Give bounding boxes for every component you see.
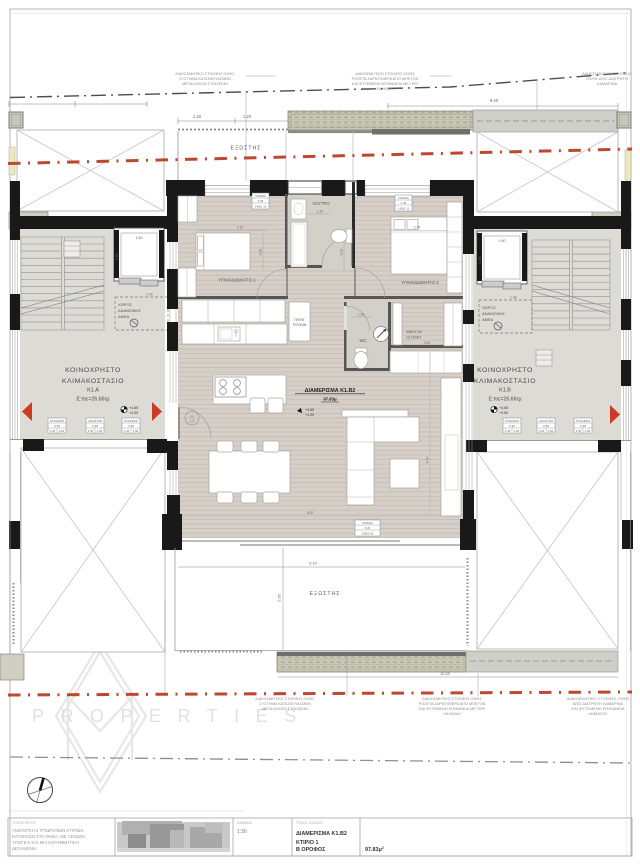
svg-text:ΔΩΜΑΤΟΣ: ΔΩΜΑΤΟΣ: [588, 711, 608, 716]
svg-text:1.40: 1.40: [510, 296, 517, 300]
svg-text:ΚΑΙ ΦΥΤΕΜΕΝΗ ΕΠΙΦΑΝΕΙΑ ΜΕ ΓΚΡΙ: ΚΑΙ ΦΥΤΕΜΕΝΗ ΕΠΙΦΑΝΕΙΑ ΜΕ ΓΚΡΙ: [352, 82, 418, 86]
svg-text:ΑΝΟΙΓΟΜ: ΑΝΟΙΓΟΜ: [88, 419, 102, 423]
svg-text:ΔΙΑΚΟΣΜΗΤΙΚΟ ΣΤΟΙΧΕΙΟ ΟΨΗΣ: ΔΙΑΚΟΣΜΗΤΙΚΟ ΣΤΟΙΧΕΙΟ ΟΨΗΣ: [355, 72, 415, 76]
svg-text:8.20: 8.20: [307, 511, 314, 515]
svg-text:2.60: 2.60: [59, 429, 65, 433]
svg-text:2.60: 2.60: [585, 429, 591, 433]
svg-text:0.80|2.60: 0.80|2.60: [362, 532, 374, 536]
svg-text:ΣΙΝΑΜΑ: ΣΙΝΑΜΑ: [255, 194, 266, 198]
svg-text:ΣΤΑΘΕΡΟ: ΣΤΑΘΕΡΟ: [505, 419, 520, 423]
svg-text:0.45: 0.45: [576, 429, 582, 433]
svg-text:1.60: 1.60: [499, 239, 506, 243]
svg-text:1.20: 1.20: [193, 114, 202, 119]
svg-text:0.90: 0.90: [543, 424, 549, 428]
svg-text:ΚΟΙΝΟΧΡΗΣΤΟ: ΚΟΙΝΟΧΡΗΣΤΟ: [65, 367, 121, 374]
svg-text:2.70: 2.70: [414, 226, 421, 230]
svg-text:WC: WC: [360, 338, 367, 343]
svg-text:ΣΤΑΘΕΡΟ: ΣΤΑΘΕΡΟ: [576, 419, 591, 423]
svg-text:ΣΙΝΑΜΑ: ΣΙΝΑΜΑ: [398, 196, 409, 200]
svg-text:ΣΙΝΑΜΑ: ΣΙΝΑΜΑ: [362, 521, 373, 525]
svg-text:ΣΥΣΤΗΜΑ ΚΑΤΑΣΚΕΥΑΣΜΩΝ: ΣΥΣΤΗΜΑ ΚΑΤΑΣΚΕΥΑΣΜΩΝ: [179, 77, 231, 81]
svg-text:0.45: 0.45: [505, 429, 511, 433]
svg-text:0.90: 0.90: [54, 424, 60, 428]
svg-text:ΔΙΑΜΕΡΙΣΜΑ Κ1.Β2: ΔΙΑΜΕΡΙΣΜΑ Κ1.Β2: [305, 388, 356, 394]
svg-text:10.20: 10.20: [440, 671, 451, 676]
svg-text:ΛΑΜΑΡΙΝΑ: ΛΑΜΑΡΙΝΑ: [597, 81, 618, 86]
svg-text:9.10: 9.10: [309, 561, 318, 566]
svg-text:2.45: 2.45: [258, 199, 264, 203]
svg-text:ΤΙΤΛΟΣ ΕΡΓΟΥ: ΤΙΤΛΟΣ ΕΡΓΟΥ: [12, 821, 37, 825]
svg-text:3.23: 3.23: [340, 249, 344, 256]
svg-text:2.60: 2.60: [548, 429, 554, 433]
svg-text:ΡΟΖΕΤΑ ΖΑΡΝΤΙΝΙΕΡΑ ΑΠΟ ΜΠΕΤΟΝ: ΡΟΖΕΤΑ ΖΑΡΝΤΙΝΙΕΡΑ ΑΠΟ ΜΠΕΤΟΝ: [352, 77, 419, 81]
svg-text:0.80|1.10: 0.80|1.10: [255, 205, 267, 209]
svg-text:2.05: 2.05: [424, 341, 430, 345]
svg-text:ΧΑΛΙΚΑΚΙ: ΧΑΛΙΚΑΚΙ: [376, 87, 393, 91]
svg-text:1.60: 1.60: [136, 236, 143, 240]
svg-text:ΡΟΖΕΤΑ ΖΑΡΝΤΙΝΙΕΡΑ ΑΠΟ ΜΠΕΤΟΝ: ΡΟΖΕΤΑ ΖΑΡΝΤΙΝΙΕΡΑ ΑΠΟ ΜΠΕΤΟΝ: [419, 702, 486, 706]
svg-text:ΔΙΑΜΕΡΙΣΜΑ Κ1.Β2: ΔΙΑΜΕΡΙΣΜΑ Κ1.Β2: [296, 831, 347, 837]
svg-text:ΚΛΙΜΑΚΟΣΤΑΣΙΟ: ΚΛΙΜΑΚΟΣΤΑΣΙΟ: [62, 378, 124, 385]
svg-text:ΔΙΑΚΟΣΜΗΤΙΚΟ ΣΤΟΙΧΕΙΟ ΟΨΗΣ: ΔΙΑΚΟΣΜΗΤΙΚΟ ΣΤΟΙΧΕΙΟ ΟΨΗΣ: [255, 697, 315, 701]
svg-text:ΑΜΕΑ: ΑΜΕΑ: [482, 317, 494, 322]
svg-text:ΧΩΡΟΣ: ΧΩΡΟΣ: [482, 305, 496, 310]
svg-text:ΚΛΙΜΑΚΟΣΤΑΣΙΟ: ΚΛΙΜΑΚΟΣΤΑΣΙΟ: [474, 378, 536, 385]
svg-text:+4.50: +4.50: [305, 413, 314, 417]
svg-text:0.90: 0.90: [509, 424, 515, 428]
svg-text:ΜΕΤΑΛΛΙΚΩΝ ΣΤΟΙΧΕΙΩΝ: ΜΕΤΑΛΛΙΚΩΝ ΣΤΟΙΧΕΙΩΝ: [182, 82, 228, 86]
svg-text:ΕΞΩΣΤΗΣ: ΕΞΩΣΤΗΣ: [309, 591, 340, 597]
svg-text:ΧΑΛΙΚΑΚΙ: ΧΑΛΙΚΑΚΙ: [443, 712, 460, 716]
svg-text:ΧΩΡΟΣ: ΧΩΡΟΣ: [118, 302, 132, 307]
svg-text:ΚΤΙΡΙΟ 1: ΚΤΙΡΙΟ 1: [296, 840, 318, 846]
svg-text:3.25: 3.25: [259, 249, 263, 256]
svg-text:2.60: 2.60: [97, 429, 103, 433]
svg-text:ΣΤΑΘΕΡΟ: ΣΤΑΘΕΡΟ: [124, 419, 139, 423]
svg-text:ΚΑΙ ΦΥΤΕΜΕΝΗ ΕΠΙΦΑΝΕΙΑ ΜΕ ΓΚΡΙ: ΚΑΙ ΦΥΤΕΜΕΝΗ ΕΠΙΦΑΝΕΙΑ ΜΕ ΓΚΡΙ: [419, 707, 485, 711]
svg-text:ΥΠΝΟΔΩΜΑΤΙΟ 2: ΥΠΝΟΔΩΜΑΤΙΟ 2: [401, 280, 439, 285]
svg-text:ΕΞΩΣΤΗΣ: ΕΞΩΣΤΗΣ: [230, 146, 261, 152]
svg-text:ΠΛΥΝΤ: ΠΛΥΝΤ: [294, 318, 305, 322]
svg-text:ΑΝΕΓΕΡΣΗ 2 ΤΡΙΩΡΟΦΩΝ ΚΤΙΡΙΩΝ: ΑΝΕΓΕΡΣΗ 2 ΤΡΙΩΡΟΦΩΝ ΚΤΙΡΙΩΝ: [12, 828, 84, 833]
svg-text:ΥΠΟΓΕΙΑ ΚΑΙ ΜΙΑ ΚΟΛΥΜΒΗΤΙΚΗ: ΥΠΟΓΕΙΑ ΚΑΙ ΜΙΑ ΚΟΛΥΜΒΗΤΙΚΗ: [12, 840, 79, 845]
svg-text:9.40: 9.40: [490, 98, 499, 103]
svg-text:ΑΝΟΙΓΟΜ: ΑΝΟΙΓΟΜ: [539, 419, 553, 423]
svg-text:ΚΛΙΜΑΚΑ: ΚΛΙΜΑΚΑ: [237, 821, 253, 825]
svg-text:2.95: 2.95: [277, 593, 282, 602]
svg-text:0.45: 0.45: [88, 429, 94, 433]
svg-text:+4.65: +4.65: [129, 406, 138, 410]
svg-text:1.26: 1.26: [358, 313, 364, 317]
svg-text:1.15: 1.15: [317, 210, 323, 214]
svg-text:97.83μ2: 97.83μ2: [365, 846, 384, 853]
svg-text:2.60: 2.60: [514, 429, 520, 433]
svg-text:ΡΟΥΧΩΝ: ΡΟΥΧΩΝ: [293, 323, 307, 327]
svg-text:ΣΤΑΘΕΡΟ: ΣΤΑΘΕΡΟ: [50, 419, 65, 423]
svg-text:1.90: 1.90: [115, 254, 119, 261]
svg-text:+4.65: +4.65: [499, 406, 508, 410]
svg-text:ΑΜΕΑ: ΑΜΕΑ: [118, 314, 130, 319]
svg-text:8.20: 8.20: [365, 526, 371, 530]
svg-text:ΥΠΝΟΔΩΜΑΤΙΟ 1: ΥΠΝΟΔΩΜΑΤΙΟ 1: [218, 278, 256, 283]
svg-text:1.90: 1.90: [478, 257, 482, 264]
svg-text:2.60: 2.60: [133, 429, 139, 433]
svg-text:4.70: 4.70: [426, 457, 430, 464]
svg-text:ΛΟΥΤΡΟ: ΛΟΥΤΡΟ: [312, 201, 330, 206]
svg-text:+4.50: +4.50: [499, 411, 508, 415]
svg-text:ΑΝΑΜΟΝΗΣ: ΑΝΑΜΟΝΗΣ: [482, 311, 505, 316]
svg-text:Β ΟΡΟΦΟΣ: Β ΟΡΟΦΟΣ: [296, 847, 326, 853]
svg-text:ΔΕΞΑΜΕΝΗ: ΔΕΞΑΜΕΝΗ: [12, 846, 36, 851]
svg-text:ΚΑΤΟΙΚΙΩΝ ΣΤΗ ΘΗΒΑ, ΜΕ ΞΕΝΩΝΑ: ΚΑΤΟΙΚΙΩΝ ΣΤΗ ΘΗΒΑ, ΜΕ ΞΕΝΩΝΑ: [12, 834, 86, 839]
svg-text:1.40: 1.40: [146, 293, 153, 297]
svg-text:0.45: 0.45: [50, 429, 56, 433]
svg-text:+4.65: +4.65: [305, 408, 314, 412]
svg-text:ΤΙΤΛΟΣ ΣΧΕΔΙΟΥ: ΤΙΤΛΟΣ ΣΧΕΔΙΟΥ: [296, 821, 324, 825]
svg-text:Ε:πιε=26.66τμ: Ε:πιε=26.66τμ: [77, 397, 110, 403]
svg-text:ΣΥΣΤΗΜΑ ΚΑΤΑΣΚΕΥΑΣΜΩΝ: ΣΥΣΤΗΜΑ ΚΑΤΑΣΚΕΥΑΣΜΩΝ: [259, 702, 311, 706]
svg-text:0.45: 0.45: [124, 429, 130, 433]
svg-text:WALK IN: WALK IN: [406, 330, 422, 334]
svg-text:2.45: 2.45: [401, 201, 407, 205]
svg-text:0.45: 0.45: [539, 429, 545, 433]
svg-text:ΔΙΑΚΟΣΜΗΤΙΚΟ ΣΤΟΙΧΕΙΟ ΟΨΗΣ: ΔΙΑΚΟΣΜΗΤΙΚΟ ΣΤΟΙΧΕΙΟ ΟΨΗΣ: [175, 72, 235, 76]
svg-text:CLOSET: CLOSET: [406, 336, 422, 340]
svg-text:ΜΕΤΑΛΛΙΚΩΝ ΣΤΟΙΧΕΙΩΝ: ΜΕΤΑΛΛΙΚΩΝ ΣΤΟΙΧΕΙΩΝ: [262, 707, 308, 711]
svg-text:0.90: 0.90: [128, 424, 134, 428]
svg-text:1.90: 1.90: [189, 419, 195, 423]
svg-text:1.20: 1.20: [243, 114, 252, 119]
svg-text:0.90: 0.90: [580, 424, 586, 428]
svg-text:Ε:πιε=26.66τμ: Ε:πιε=26.66τμ: [489, 397, 522, 403]
svg-text:0.80|1.10: 0.80|1.10: [398, 207, 410, 211]
svg-text:ΑΝΑΜΟΝΗΣ: ΑΝΑΜΟΝΗΣ: [118, 308, 141, 313]
svg-text:Κ1.Α: Κ1.Α: [87, 388, 99, 394]
svg-text:ΚΟΙΝΟΧΡΗΣΤΟ: ΚΟΙΝΟΧΡΗΣΤΟ: [477, 367, 533, 374]
svg-text:97.83μ: 97.83μ: [323, 397, 336, 402]
svg-text:2.10: 2.10: [237, 226, 244, 230]
svg-text:ΔΙΑΚΟΣΜΗΤΙΚΟ ΣΤΟΙΧΕΙΟ ΟΨΗΣ: ΔΙΑΚΟΣΜΗΤΙΚΟ ΣΤΟΙΧΕΙΟ ΟΨΗΣ: [422, 697, 482, 701]
svg-text:Κ1.Β: Κ1.Β: [499, 388, 511, 394]
svg-text:1:30: 1:30: [237, 829, 247, 835]
svg-text:0.90: 0.90: [92, 424, 98, 428]
svg-text:+4.50: +4.50: [129, 411, 138, 415]
